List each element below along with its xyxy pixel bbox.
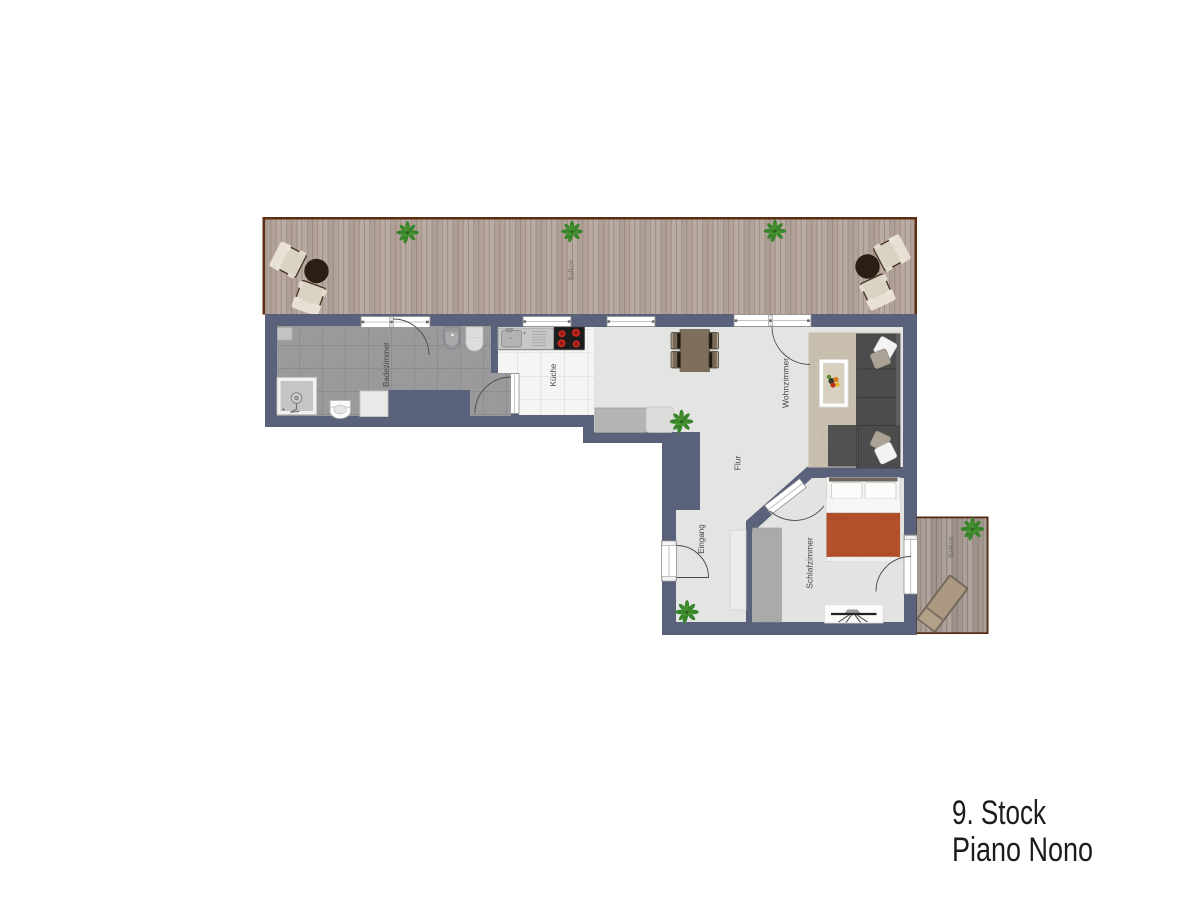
svg-text:Piano Nono: Piano Nono	[952, 831, 1093, 869]
svg-text:Badezimmer: Badezimmer	[382, 342, 391, 387]
svg-text:Wohnzimmer: Wohnzimmer	[781, 358, 791, 408]
svg-text:Küche: Küche	[549, 363, 558, 386]
svg-text:Eingang: Eingang	[697, 524, 706, 553]
svg-text:Balkon: Balkon	[569, 259, 576, 281]
svg-text:Schlafzimmer: Schlafzimmer	[805, 537, 815, 589]
svg-text:Balkon: Balkon	[949, 536, 956, 558]
svg-text:Flur: Flur	[733, 456, 743, 471]
svg-text:9. Stock: 9. Stock	[952, 794, 1047, 832]
